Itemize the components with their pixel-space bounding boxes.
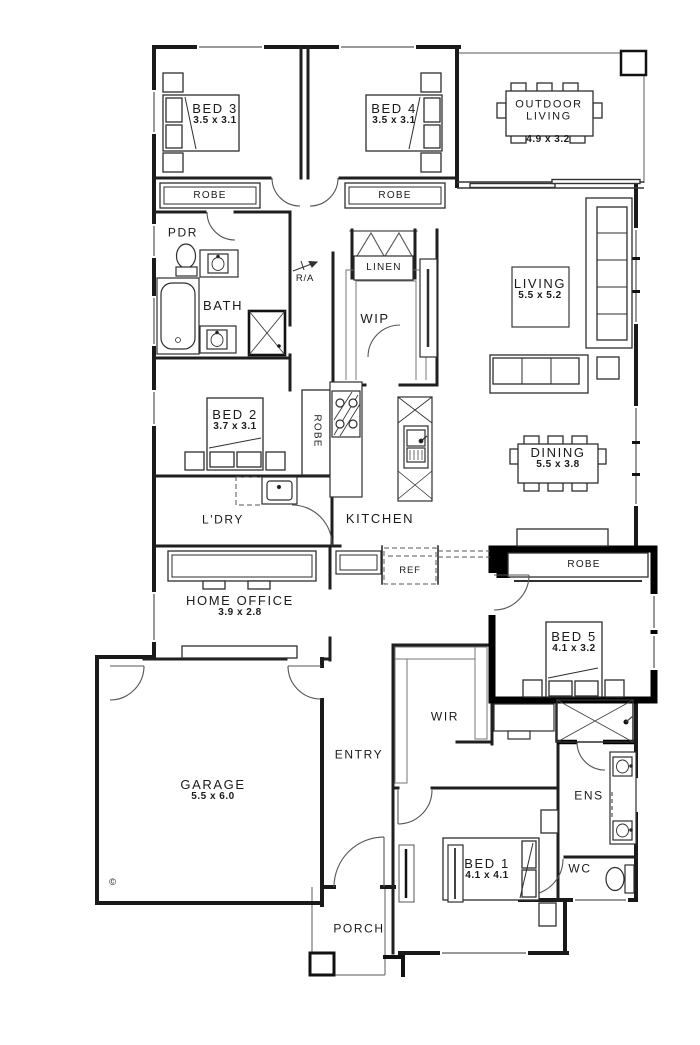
room-label-bed2: BED 23.7 x 3.1 <box>212 408 258 432</box>
label-robe-bed5: ROBE <box>564 560 603 571</box>
outdoor-pier-column <box>621 51 646 75</box>
laundry-sink-icon <box>262 477 297 504</box>
linen-cabinet-icon <box>420 259 437 357</box>
room-label-wir: WIR <box>431 711 459 724</box>
label-robe-bed4: ROBE <box>375 191 414 202</box>
pdr-vanity-icon <box>200 250 238 277</box>
room-label-home-office: HOME OFFICE3.9 x 2.8 <box>186 594 294 618</box>
room-label-bed1: BED 14.1 x 4.1 <box>464 857 510 881</box>
bathtub-icon <box>157 278 199 354</box>
home-office-bench-icon <box>182 646 297 658</box>
return-air-arrow-icon <box>293 261 317 271</box>
dining-sideboard-icon <box>517 529 608 546</box>
entry-sidelight <box>399 845 414 902</box>
room-label-bed5: BED 54.1 x 3.2 <box>551 630 597 654</box>
bath-vanity-icon <box>200 326 236 353</box>
room-label-wip: WIP <box>360 312 389 326</box>
label-robe-bed2: ROBE <box>311 414 322 447</box>
dressing-desk-icon <box>494 704 554 739</box>
cooktop-icon <box>332 391 360 437</box>
home-office-desk-icon <box>168 551 316 589</box>
room-label-living: LIVING5.5 x 5.2 <box>514 277 566 301</box>
pdr-toilet-icon <box>176 244 197 276</box>
room-label-wc: WC <box>568 863 591 876</box>
wc-toilet-icon <box>606 865 634 893</box>
hall-cabinet-icon <box>336 551 381 574</box>
porch-column <box>310 953 403 977</box>
room-label-laundry: L'DRY <box>202 514 244 527</box>
room-label-bed4: BED 43.5 x 3.1 <box>371 102 417 126</box>
island-bench-icon <box>398 397 432 501</box>
ens-vanity-icon <box>610 752 636 844</box>
label-linen: LINEN <box>363 263 404 274</box>
room-label-pdr: PDR <box>168 227 198 240</box>
copyright-symbol: © <box>109 878 117 888</box>
bath-shower-icon <box>249 311 285 355</box>
sliding-door <box>457 180 644 189</box>
room-label-porch: PORCH <box>333 923 384 936</box>
label-fridge: REF <box>396 566 423 576</box>
room-label-dining: DINING5.5 x 3.8 <box>530 446 585 470</box>
label-return-air: R/A <box>296 274 314 284</box>
ens-shower-icon <box>557 700 633 742</box>
room-label-outdoor-living: OUTDOORLIVING <box>515 99 582 122</box>
floor-plan: BED 33.5 x 3.1 BED 43.5 x 3.1 OUTDOORLIV… <box>0 0 700 1045</box>
room-label-ens: ENS <box>574 790 603 803</box>
room-label-bath: BATH <box>203 299 243 313</box>
label-robe-bed3: ROBE <box>190 191 229 202</box>
bed1-robe-icon <box>448 845 463 902</box>
room-label-entry: ENTRY <box>335 749 383 762</box>
room-label-garage: GARAGE5.5 x 6.0 <box>180 778 245 802</box>
room-label-kitchen: KITCHEN <box>346 512 414 526</box>
room-label-bed3: BED 33.5 x 3.1 <box>192 102 238 126</box>
room-dims-outdoor-living: 4.9 x 3.2 <box>526 135 569 146</box>
